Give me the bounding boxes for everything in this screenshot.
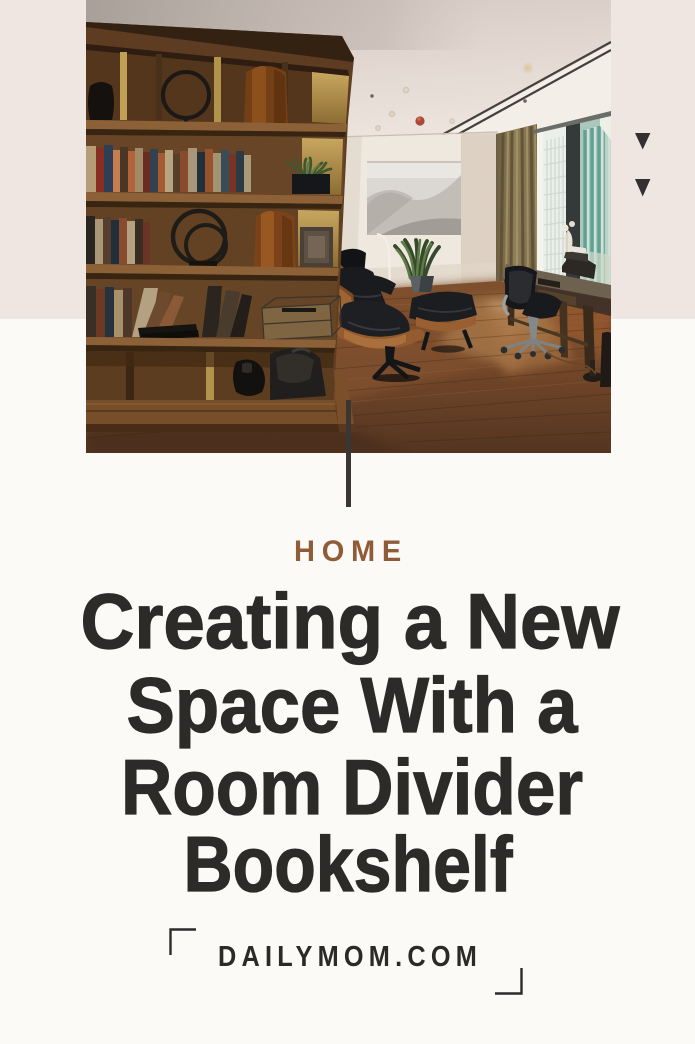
svg-text:Creating a New: Creating a New: [81, 577, 620, 665]
svg-text:DAILYMOM.COM: DAILYMOM.COM: [218, 941, 482, 973]
svg-text:Room Divider: Room Divider: [121, 743, 583, 831]
svg-text:Space With a: Space With a: [127, 661, 579, 749]
svg-text:HOME: HOME: [294, 535, 408, 568]
svg-text:Bookshelf: Bookshelf: [184, 820, 514, 908]
